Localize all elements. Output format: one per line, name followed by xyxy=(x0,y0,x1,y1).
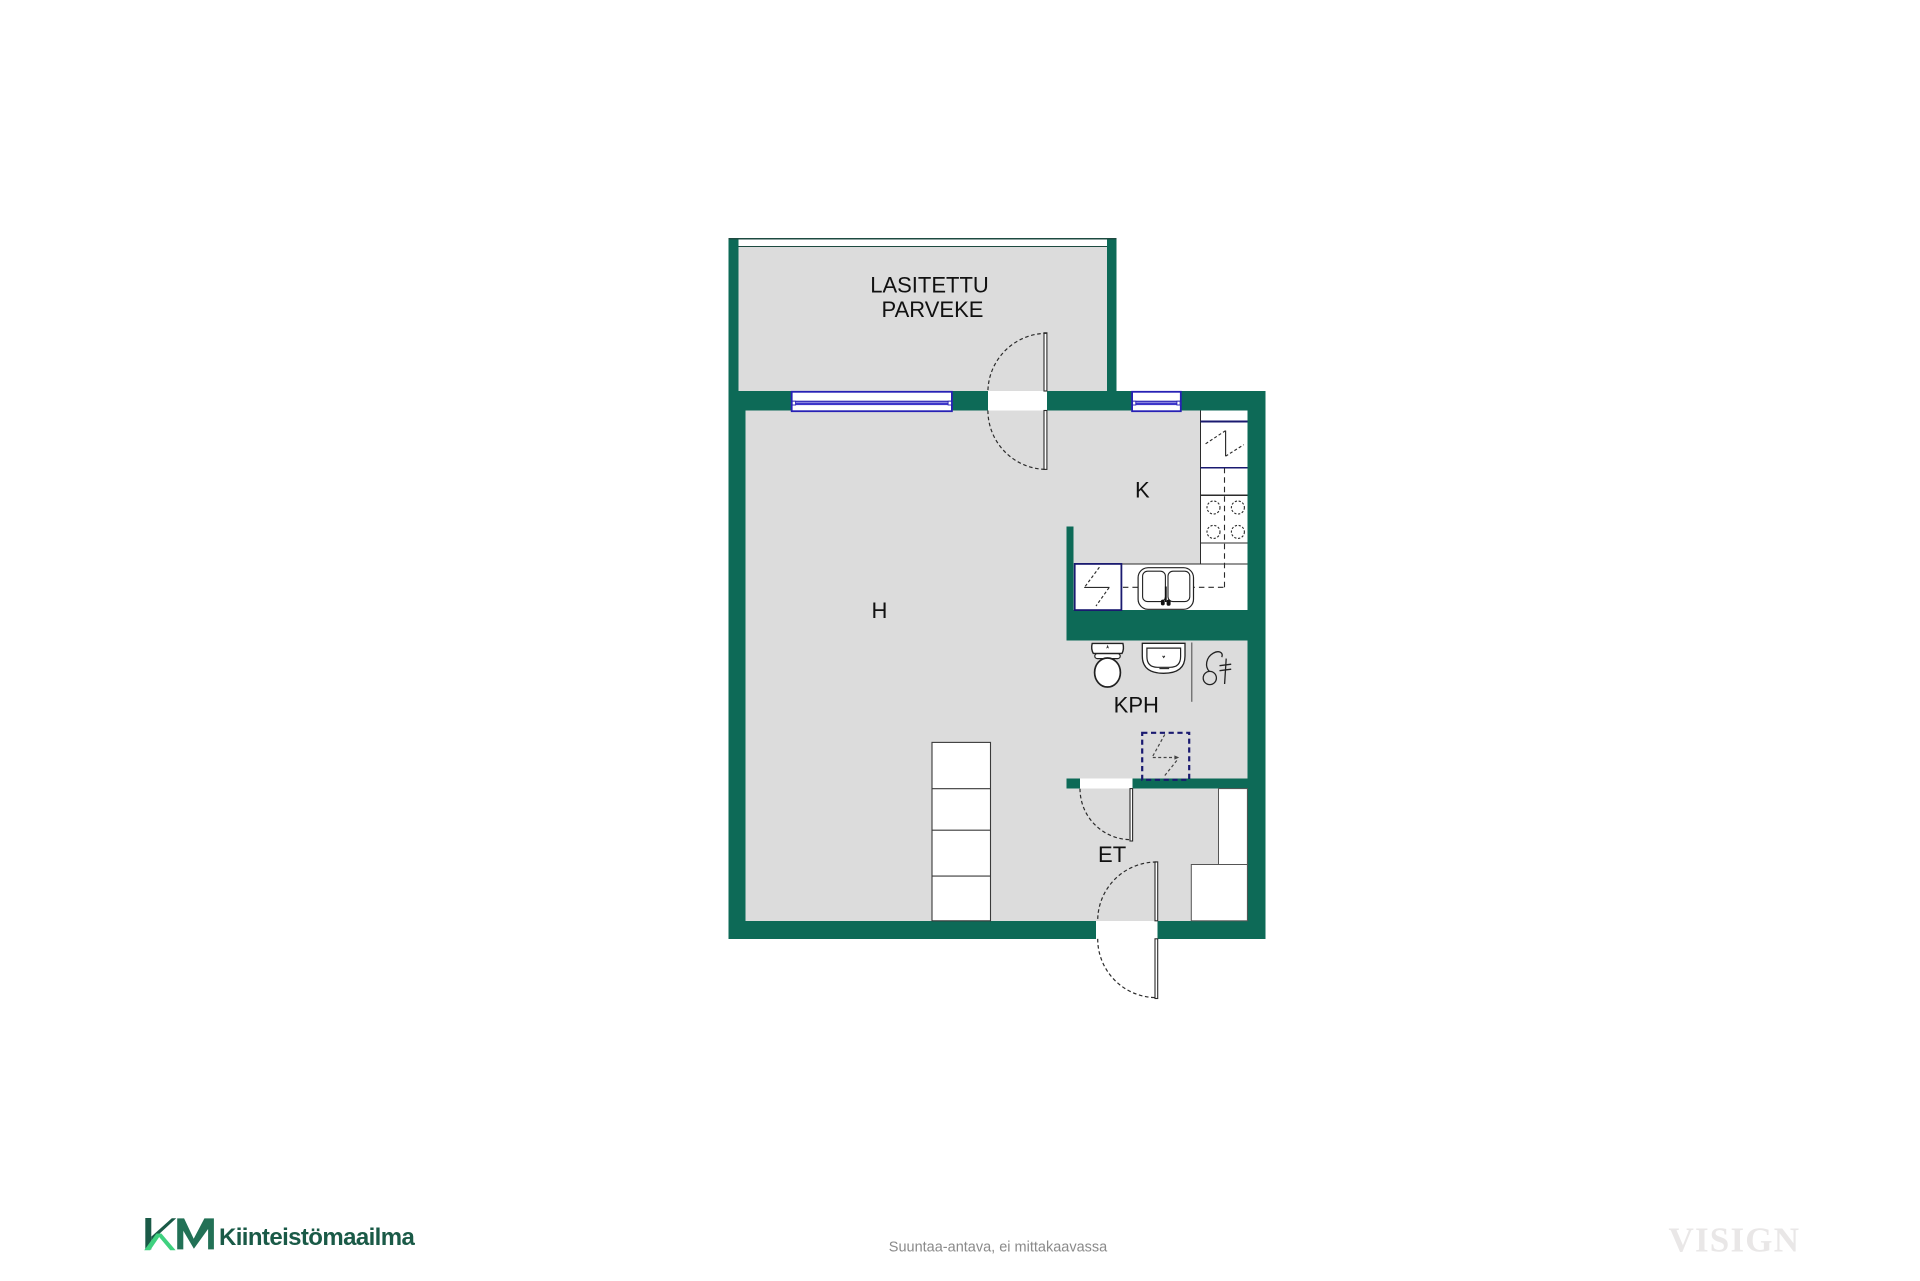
svg-text:VISIGN: VISIGN xyxy=(1669,1221,1801,1260)
svg-text:K: K xyxy=(1135,478,1150,503)
svg-text:Kiinteistömaailma: Kiinteistömaailma xyxy=(219,1224,415,1251)
svg-text:KPH: KPH xyxy=(1114,693,1159,718)
svg-text:PARVEKE: PARVEKE xyxy=(882,297,984,322)
svg-text:H: H xyxy=(871,598,887,623)
svg-text:LASITETTU: LASITETTU xyxy=(870,273,989,298)
svg-text:Suuntaa-antava, ei mittakaavas: Suuntaa-antava, ei mittakaavassa xyxy=(889,1239,1108,1255)
svg-text:ET: ET xyxy=(1098,842,1126,867)
